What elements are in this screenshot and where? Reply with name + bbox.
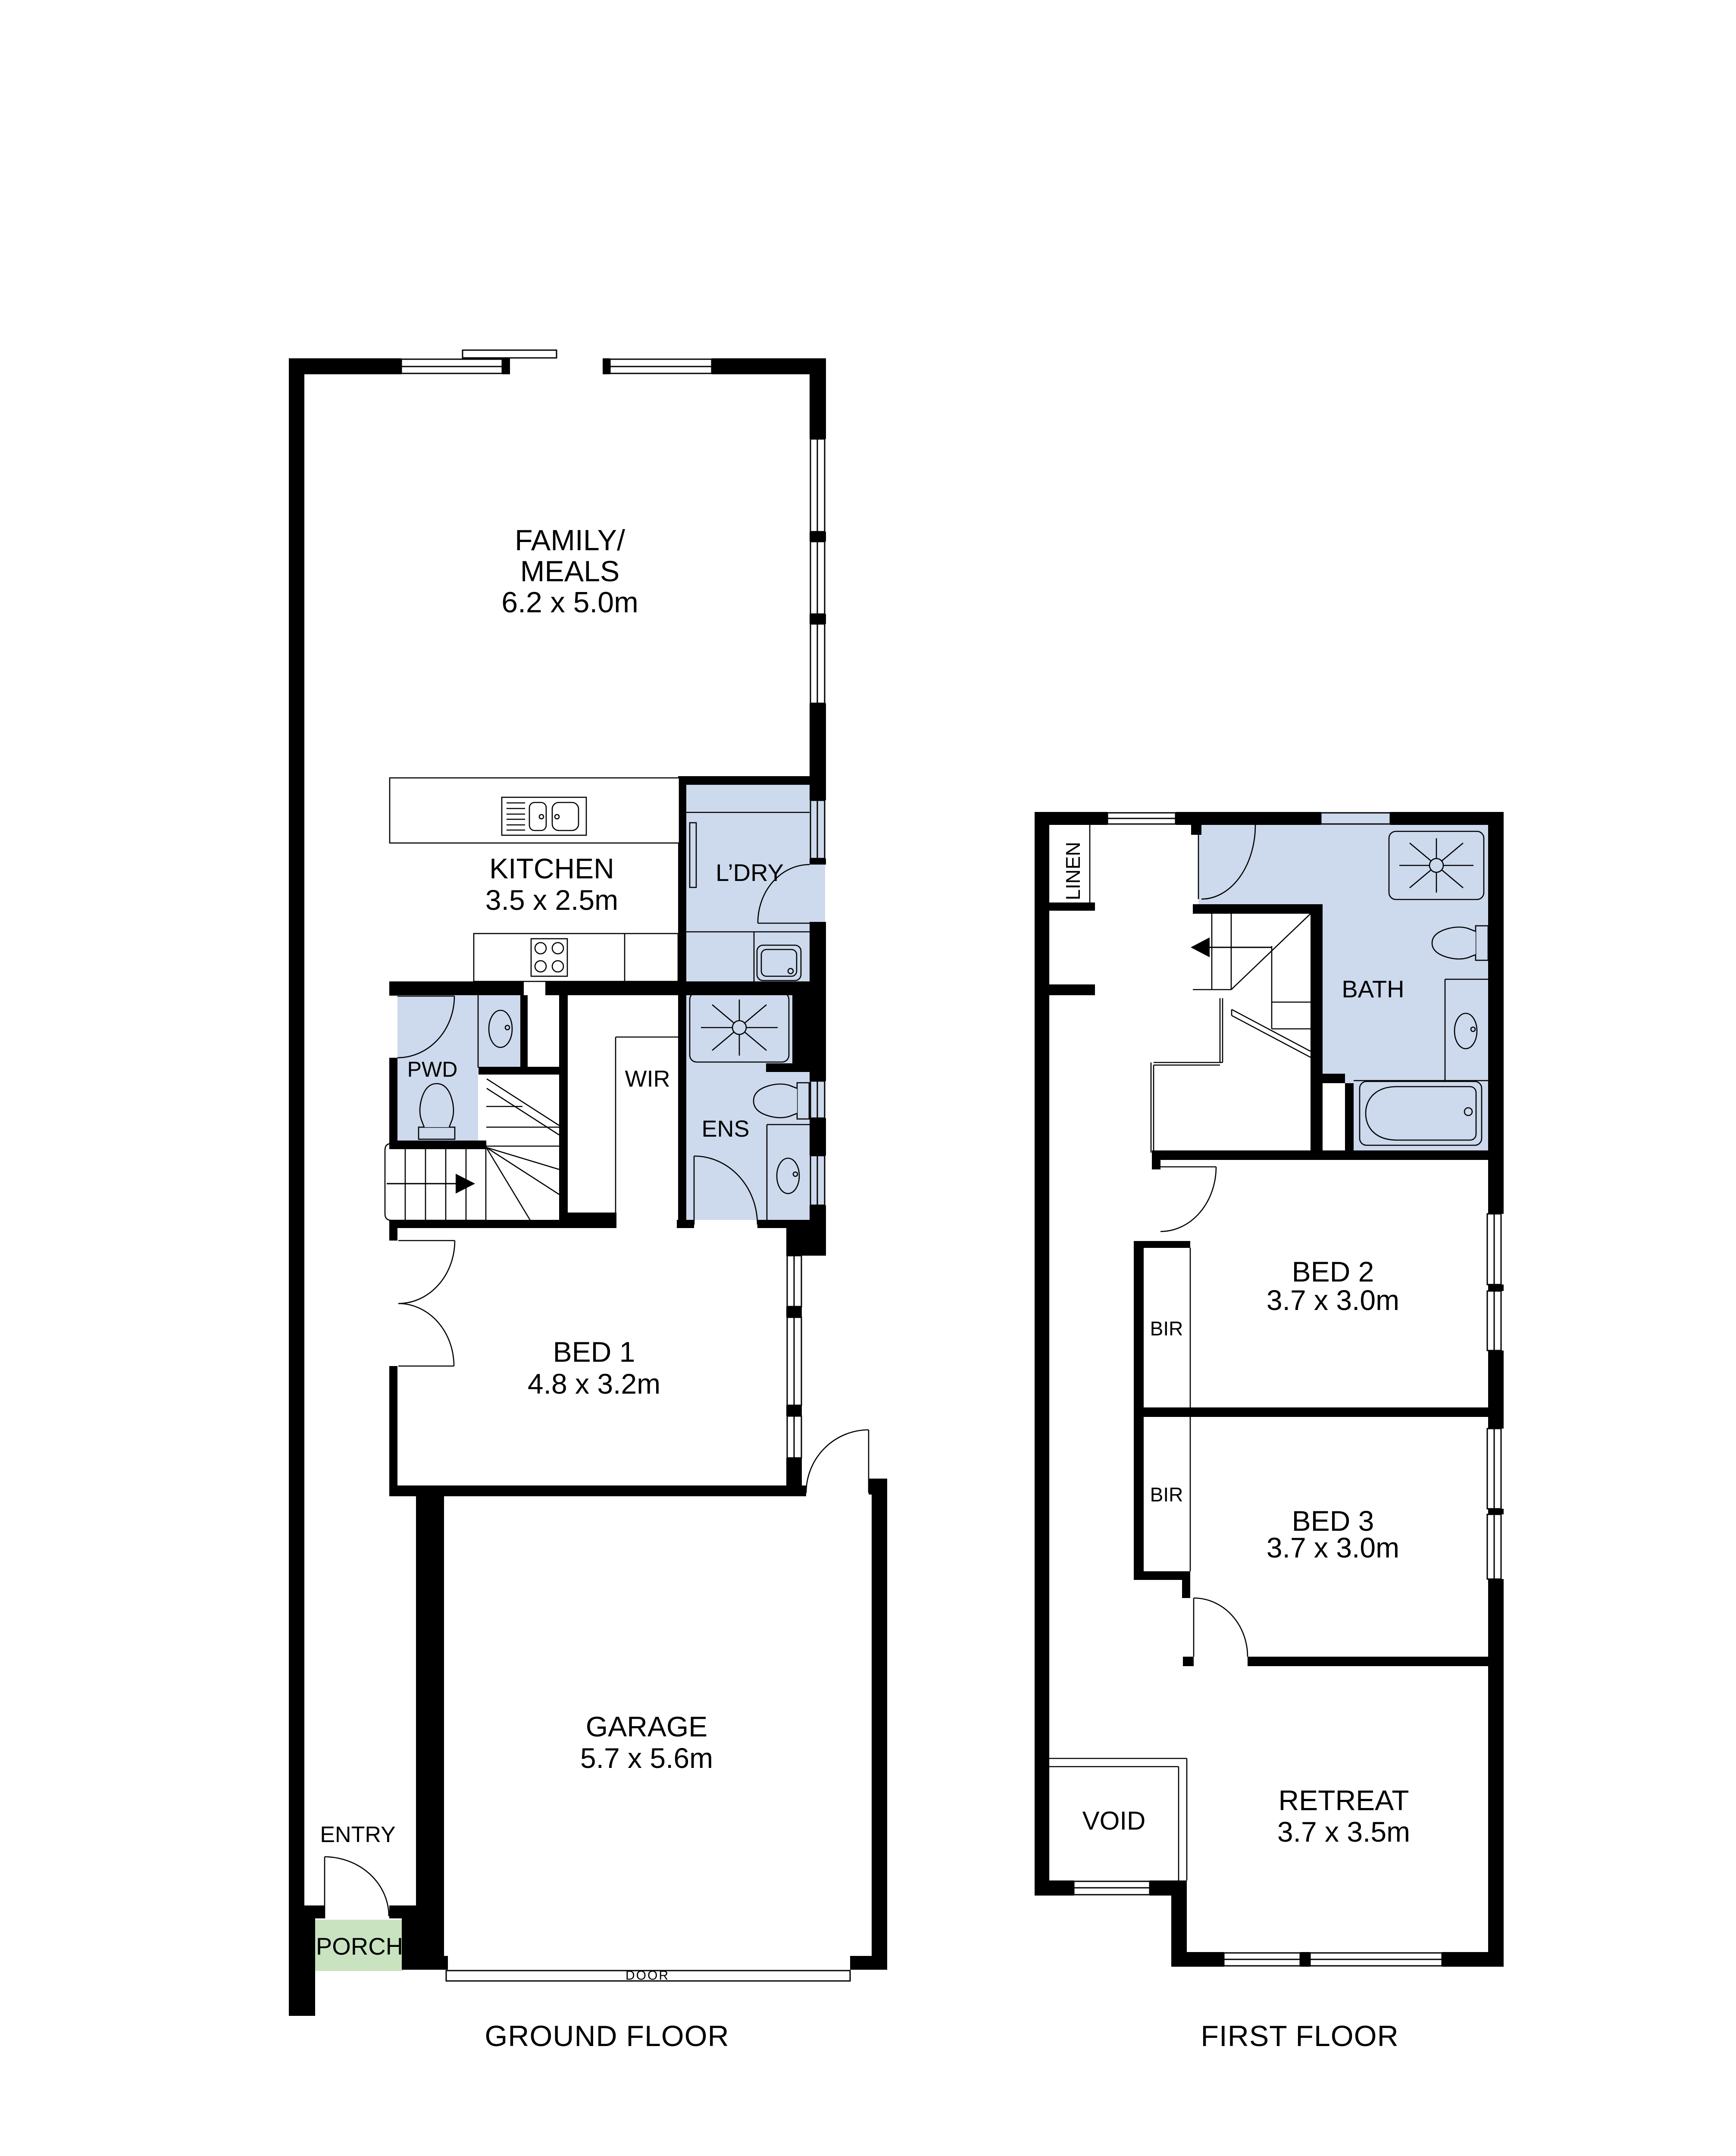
- svg-text:RETREAT: RETREAT: [1278, 1784, 1409, 1816]
- svg-text:LINEN: LINEN: [1062, 842, 1084, 900]
- svg-text:3.7 x 3.0m: 3.7 x 3.0m: [1267, 1532, 1399, 1564]
- svg-text:PWD: PWD: [407, 1057, 458, 1081]
- svg-text:ENS: ENS: [701, 1116, 749, 1142]
- svg-text:MEALS: MEALS: [520, 555, 620, 588]
- svg-text:FAMILY/: FAMILY/: [515, 524, 625, 557]
- svg-text:3.5 x 2.5m: 3.5 x 2.5m: [485, 884, 618, 916]
- svg-text:BIR: BIR: [1150, 1483, 1183, 1506]
- svg-text:4.8 x 3.2m: 4.8 x 3.2m: [528, 1368, 660, 1400]
- svg-text:KITCHEN: KITCHEN: [489, 852, 614, 884]
- svg-text:GARAGE: GARAGE: [586, 1711, 707, 1742]
- svg-text:PORCH: PORCH: [316, 1933, 403, 1960]
- svg-text:BATH: BATH: [1342, 975, 1404, 1003]
- svg-text:VOID: VOID: [1082, 1806, 1146, 1835]
- svg-text:ENTRY: ENTRY: [320, 1822, 395, 1847]
- svg-text:L’DRY: L’DRY: [716, 859, 784, 886]
- svg-text:WIR: WIR: [625, 1066, 670, 1092]
- svg-text:BIR: BIR: [1150, 1317, 1183, 1340]
- svg-text:3.7 x 3.0m: 3.7 x 3.0m: [1267, 1284, 1399, 1316]
- svg-text:6.2 x 5.0m: 6.2 x 5.0m: [501, 586, 638, 619]
- svg-text:5.7 x 5.6m: 5.7 x 5.6m: [580, 1742, 713, 1774]
- svg-text:DOOR: DOOR: [626, 1968, 669, 1983]
- svg-text:FIRST FLOOR: FIRST FLOOR: [1201, 2020, 1398, 2053]
- svg-text:BED 2: BED 2: [1292, 1256, 1374, 1288]
- svg-text:BED 1: BED 1: [553, 1336, 635, 1368]
- svg-text:GROUND FLOOR: GROUND FLOOR: [485, 2020, 729, 2053]
- svg-text:3.7 x 3.5m: 3.7 x 3.5m: [1277, 1816, 1410, 1848]
